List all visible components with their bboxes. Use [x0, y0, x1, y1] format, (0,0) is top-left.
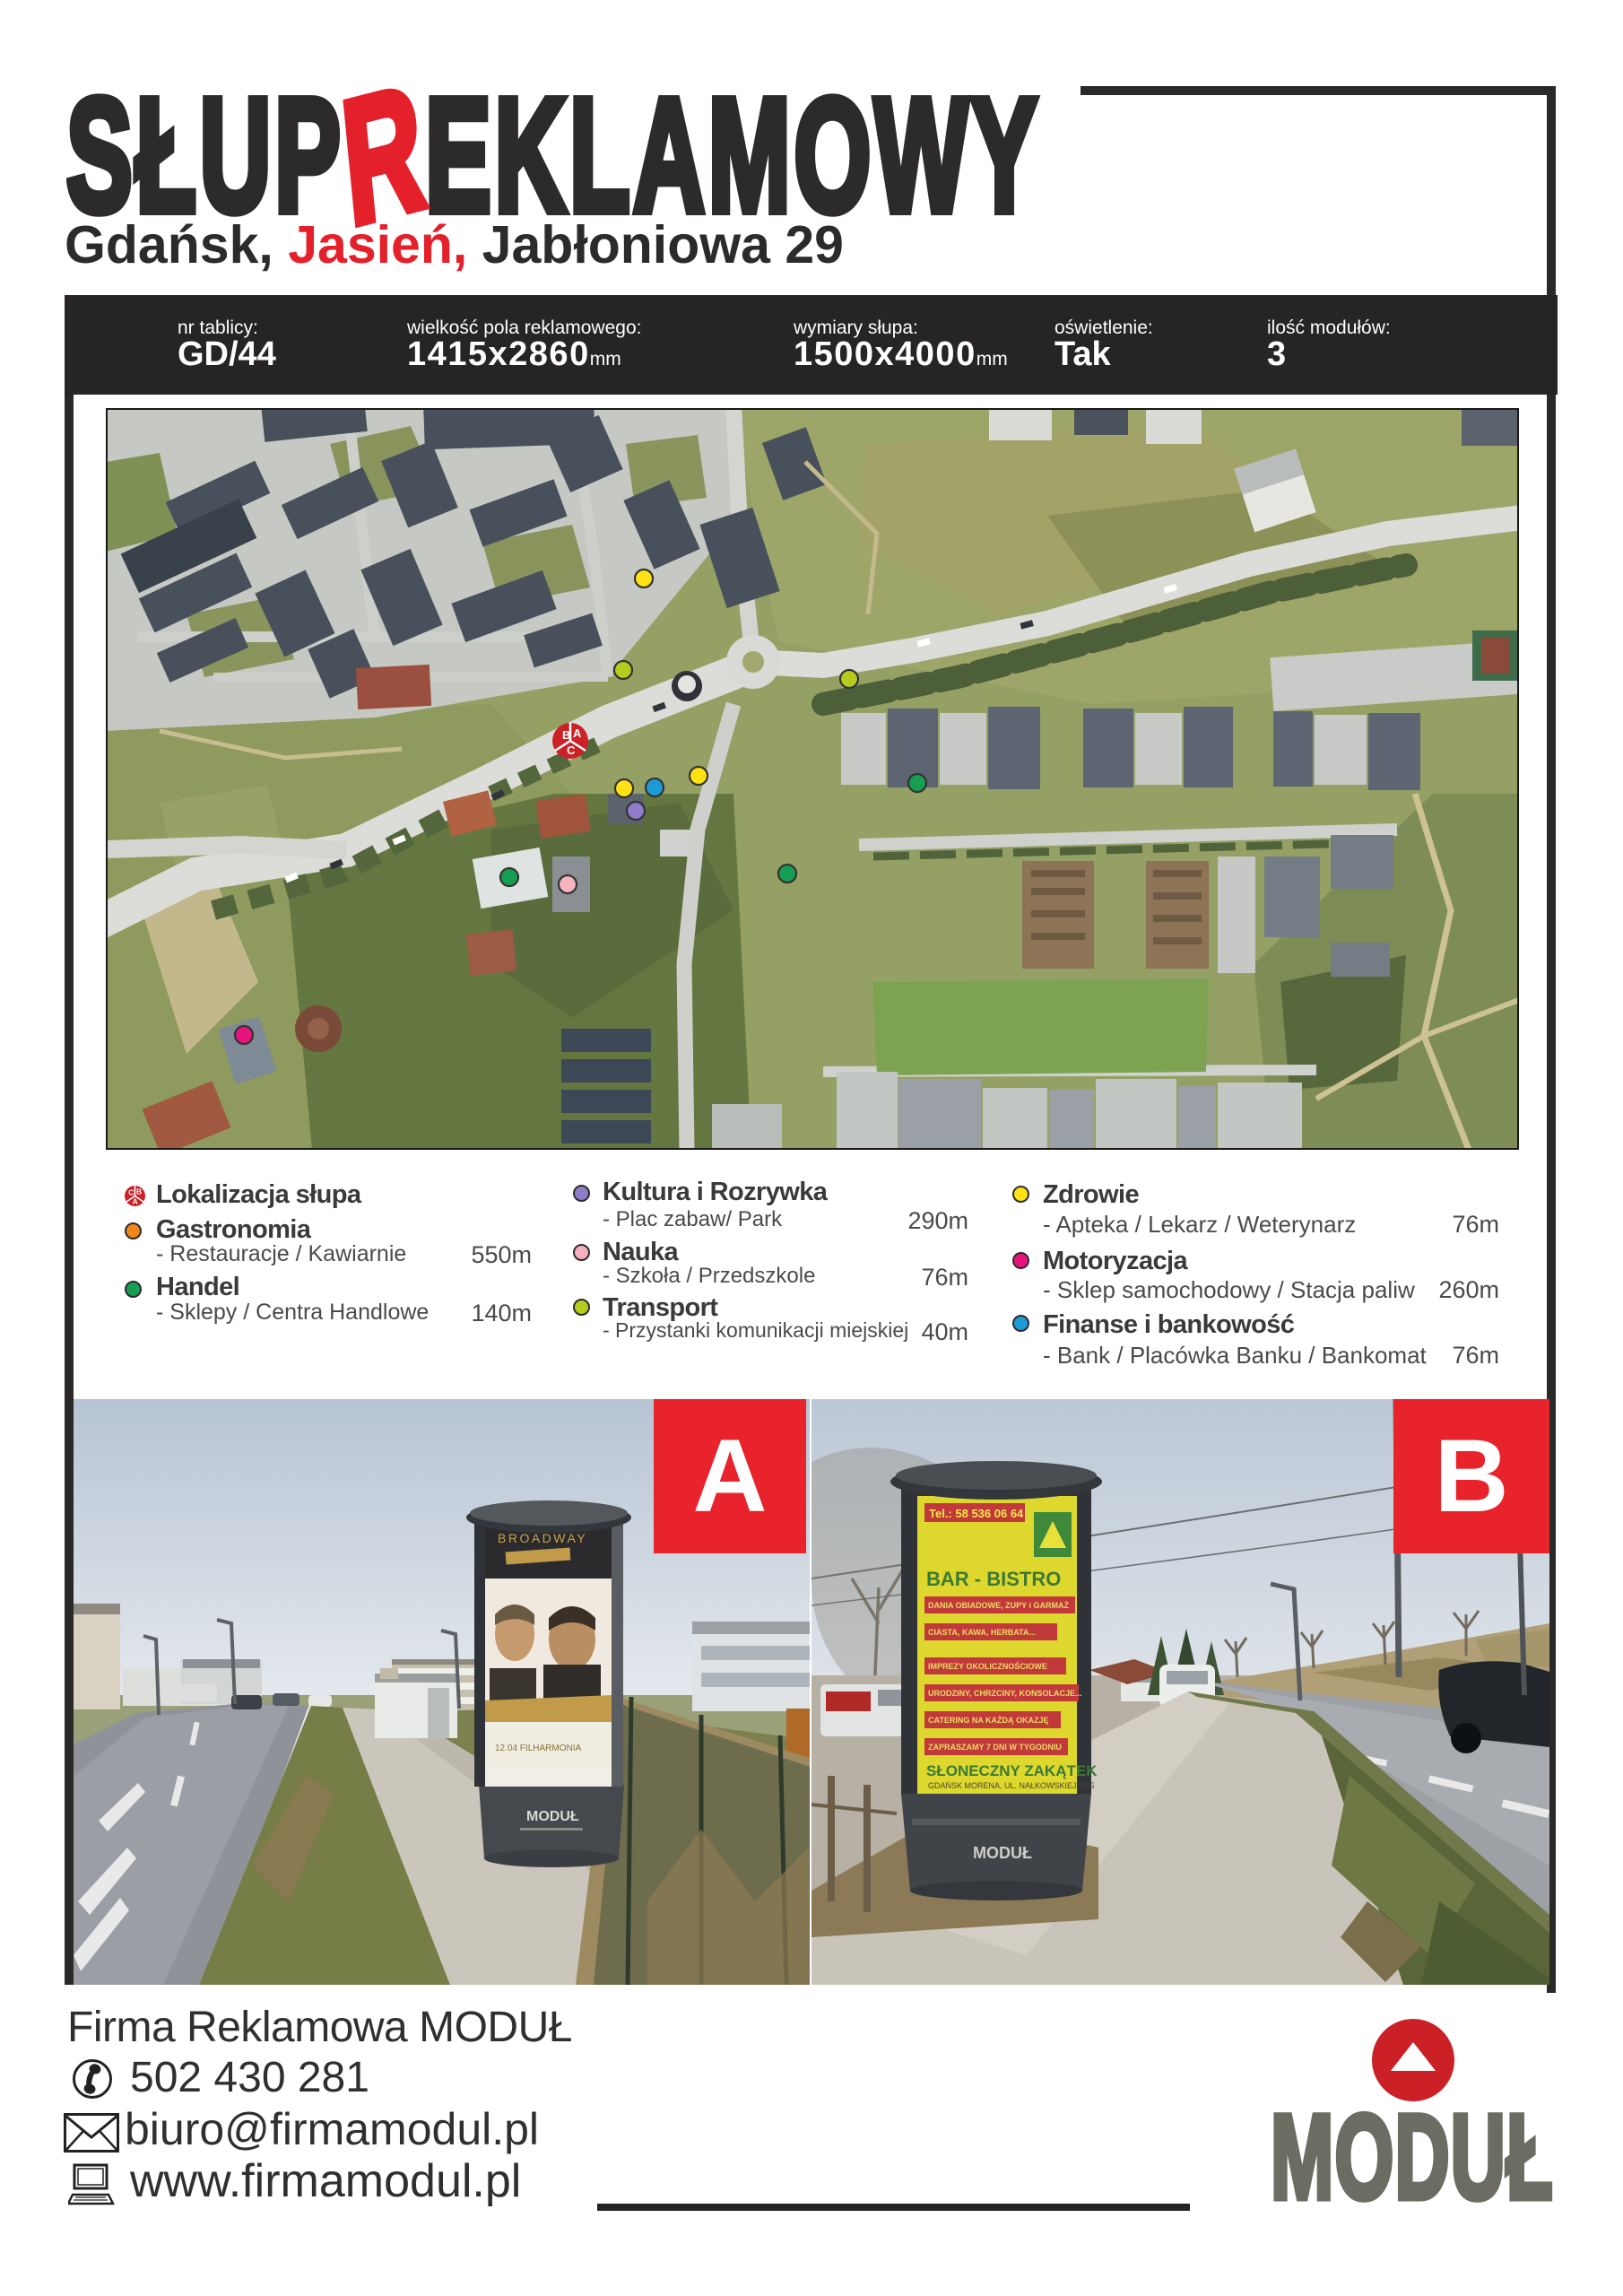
svg-text:CIASTA, KAWA, HERBATA...: CIASTA, KAWA, HERBATA...	[928, 1628, 1036, 1637]
svg-text:IMPREZY OKOLICZNOŚCIOWE: IMPREZY OKOLICZNOŚCIOWE	[928, 1661, 1047, 1671]
svg-text:BROADWAY: BROADWAY	[498, 1531, 587, 1545]
svg-text:12.04 FILHARMONIA: 12.04 FILHARMONIA	[495, 1744, 581, 1753]
svg-text:B: B	[562, 728, 570, 742]
svg-text:BAR - BISTRO: BAR - BISTRO	[926, 1568, 1061, 1590]
svg-text:URODZINY, CHRZCINY, KONSOLACJE: URODZINY, CHRZCINY, KONSOLACJE...	[928, 1689, 1082, 1698]
svg-text:DANIA OBIADOWE, ZUPY i GARMAŻ: DANIA OBIADOWE, ZUPY i GARMAŻ	[928, 1601, 1070, 1610]
svg-text:A: A	[133, 1197, 138, 1206]
svg-text:CATERING NA KAŻDĄ OKAZJĘ: CATERING NA KAŻDĄ OKAZJĘ	[928, 1716, 1049, 1725]
svg-text:C: C	[128, 1188, 134, 1197]
svg-text:ZAPRASZAMY 7 DNI W TYGODNIU: ZAPRASZAMY 7 DNI W TYGODNIU	[928, 1743, 1062, 1752]
svg-text:MODUŁ: MODUŁ	[973, 1844, 1032, 1862]
svg-text:GDAŃSK MORENA, UL. NAŁKOWSKIEJ: GDAŃSK MORENA, UL. NAŁKOWSKIEJ 3/15	[928, 1781, 1095, 1790]
svg-text:MODUŁ: MODUŁ	[526, 1809, 579, 1824]
svg-text:C: C	[567, 744, 576, 757]
svg-text:Tel.: 58 536 06 64: Tel.: 58 536 06 64	[929, 1507, 1024, 1520]
svg-text:SŁONECZNY ZAKĄTEK: SŁONECZNY ZAKĄTEK	[926, 1762, 1098, 1779]
svg-text:A: A	[573, 726, 582, 740]
svg-text:B: B	[136, 1187, 142, 1196]
